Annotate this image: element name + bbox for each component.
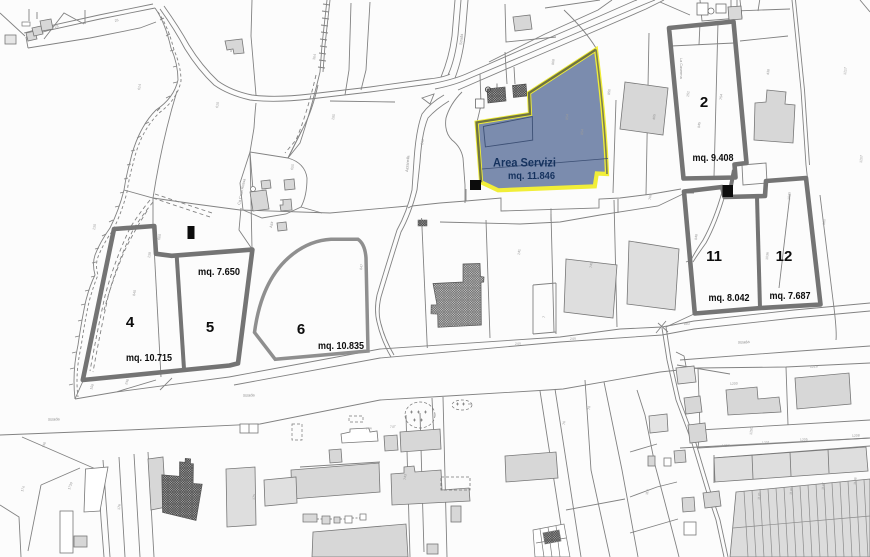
svg-text:883: 883 — [684, 322, 690, 326]
svg-text:854: 854 — [565, 114, 569, 120]
svg-text:12: 12 — [776, 248, 793, 265]
svg-text:768: 768 — [648, 194, 652, 200]
svg-text:5: 5 — [206, 319, 214, 336]
svg-text:6: 6 — [297, 321, 305, 338]
svg-text:1039: 1039 — [787, 192, 792, 200]
svg-text:744: 744 — [366, 426, 372, 430]
svg-text:115: 115 — [645, 489, 649, 495]
svg-text:660: 660 — [822, 219, 826, 225]
svg-text:438: 438 — [766, 69, 770, 75]
svg-text:241: 241 — [517, 249, 521, 255]
svg-text:1147: 1147 — [821, 482, 826, 490]
svg-text:mq. 10.835: mq. 10.835 — [318, 341, 364, 352]
svg-text:743: 743 — [403, 474, 407, 480]
svg-text:1217: 1217 — [843, 67, 848, 75]
svg-text:244: 244 — [515, 342, 521, 346]
svg-text:845: 845 — [697, 122, 701, 128]
svg-text:252: 252 — [686, 91, 690, 97]
svg-text:850: 850 — [607, 89, 611, 95]
svg-text:848: 848 — [694, 234, 698, 240]
svg-text:mq. 9.408: mq. 9.408 — [693, 153, 734, 164]
svg-text:1219: 1219 — [810, 364, 818, 369]
svg-text:11: 11 — [706, 248, 722, 265]
svg-text:76: 76 — [562, 421, 566, 425]
svg-text:1148: 1148 — [853, 477, 858, 485]
svg-text:Strada: Strada — [243, 392, 256, 398]
svg-text:1208: 1208 — [852, 433, 860, 438]
svg-text:2: 2 — [700, 94, 708, 111]
svg-text:1200: 1200 — [730, 381, 738, 386]
svg-text:mq. 7.687: mq. 7.687 — [770, 291, 811, 302]
svg-text:mq. 11.846: mq. 11.846 — [508, 170, 555, 182]
svg-text:Area Servizi: Area Servizi — [493, 156, 556, 170]
svg-text:1146: 1146 — [789, 487, 794, 495]
svg-text:244: 244 — [570, 337, 576, 341]
svg-text:1207: 1207 — [859, 155, 864, 163]
svg-text:1203: 1203 — [722, 443, 730, 448]
svg-text:La Caserma: La Caserma — [679, 58, 683, 80]
svg-text:868: 868 — [551, 59, 555, 65]
svg-text:mq. 8.042: mq. 8.042 — [709, 293, 750, 304]
svg-text:749: 749 — [589, 262, 593, 268]
svg-text:754: 754 — [719, 94, 723, 100]
svg-text:175: 175 — [252, 494, 256, 500]
svg-text:Strada: Strada — [48, 416, 61, 422]
svg-text:mq. 10.715: mq. 10.715 — [126, 353, 172, 364]
svg-text:747: 747 — [390, 424, 396, 428]
svg-text:854: 854 — [580, 129, 584, 135]
svg-text:78: 78 — [587, 406, 591, 410]
svg-text:1145: 1145 — [757, 492, 762, 500]
svg-text:465: 465 — [652, 114, 656, 120]
svg-text:4: 4 — [126, 314, 135, 331]
svg-text:1205: 1205 — [800, 437, 808, 442]
svg-text:1201: 1201 — [762, 440, 770, 445]
svg-text:7: 7 — [542, 316, 546, 318]
svg-text:1036: 1036 — [765, 252, 770, 260]
svg-text:a: a — [230, 49, 232, 53]
svg-text:176: 176 — [117, 504, 121, 510]
svg-text:mq. 7.650: mq. 7.650 — [198, 267, 240, 278]
svg-text:1250: 1250 — [749, 427, 754, 435]
